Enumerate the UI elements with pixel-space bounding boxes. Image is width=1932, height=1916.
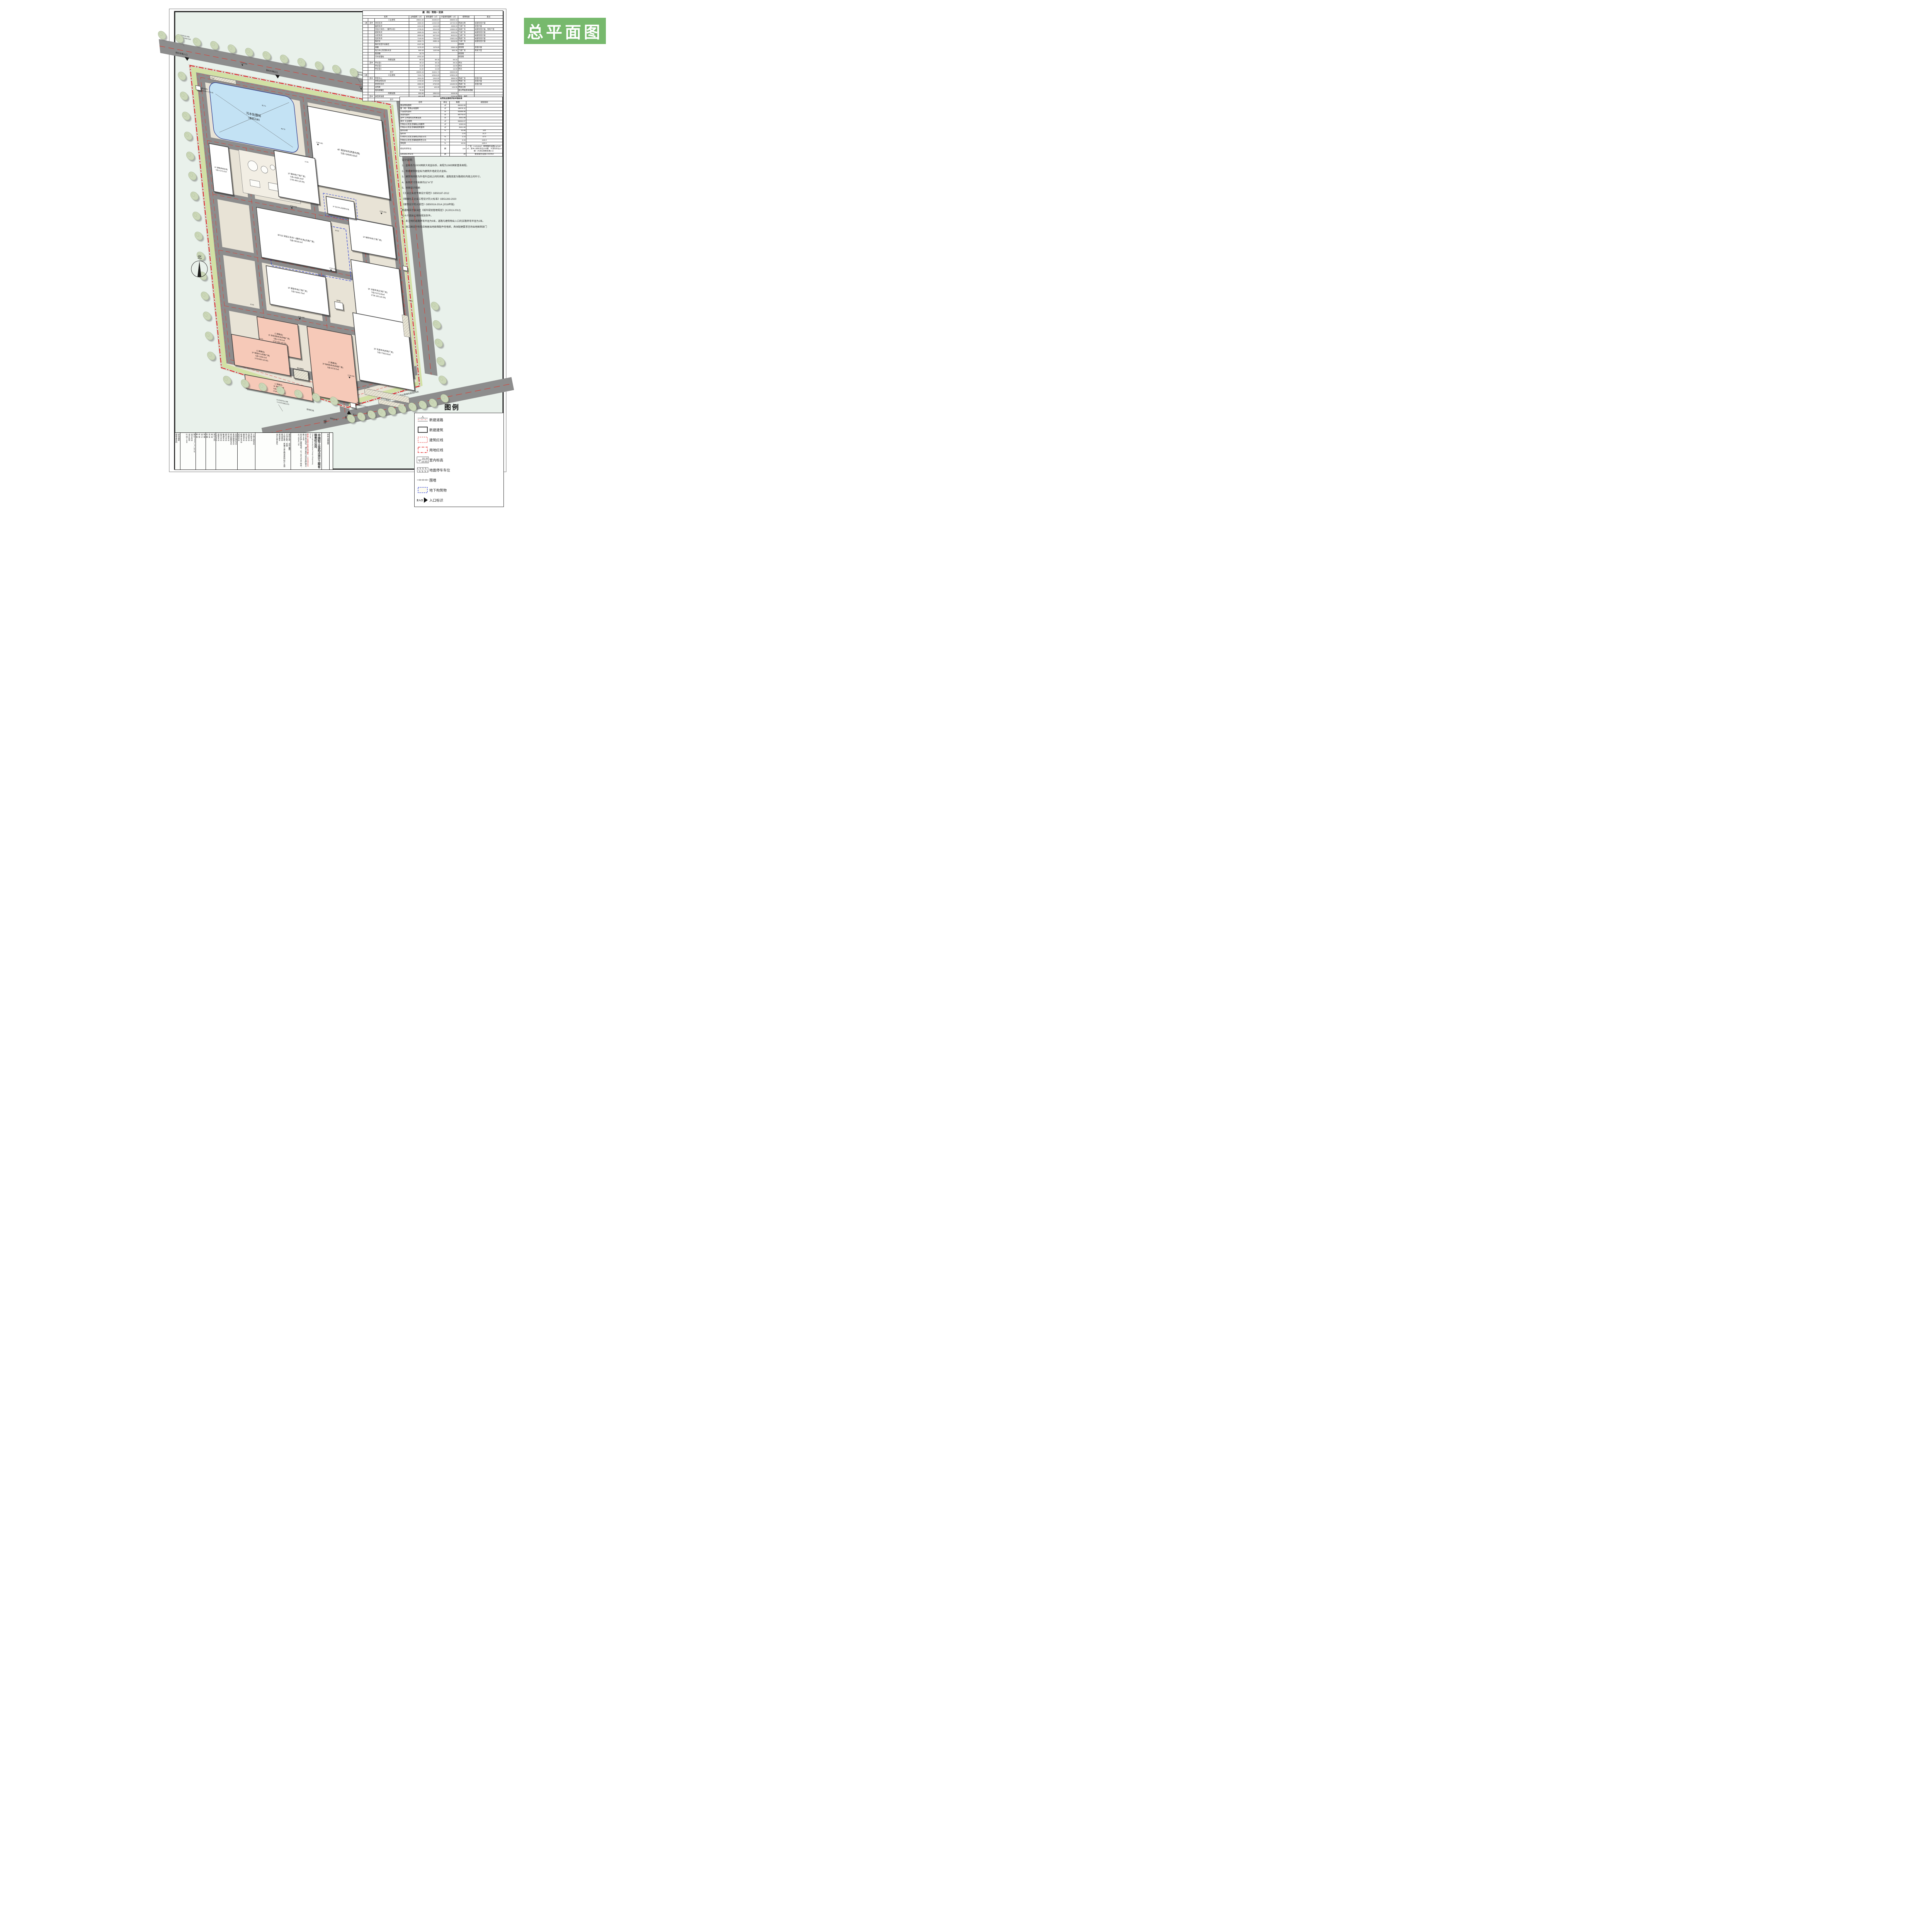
entrance-mark-icon: 主入口 [416,496,429,504]
table-row: 绿地率%12.51≤20.0 [400,142,503,145]
table-row: 其中传达室139.1639.1639.16传达 [363,61,503,65]
table-row: 改性淀粉车间1720.001720.003440.00甲类厂房双倍计容 [363,80,503,83]
table-row: 传达室315.0015.0015.00传达 [363,68,503,71]
title-block-cell: 人防工程专业市政专业自控专业热力专业弱电专业给排水专业结构专业总图专业签 名 [238,433,255,470]
legend-item-new-road: 新建道路 [416,415,459,425]
legend-panel: 图例 新建道路 新建建筑 建筑红线 [414,402,504,507]
title-block-cell: 图纸名称：总平面图子项名称：总图工程名称：新疆三垒生物基新材料产业园建设项目建设… [255,433,291,470]
building: 1F 锅炉房(丁类厂房)S总=2586.16㎡1740.400 (±0.00) [274,150,320,204]
title-block-cell: 特种设备盖章 [322,433,330,470]
table-row: 工业建筑30821.3245335.5768600.42 [363,19,503,22]
title-block: 修改版别图纸条形码图 号 ******—**—## ##设计专业设计阶段比 例 … [175,432,333,470]
table-row: 二期工业建筑7234.7510518.3020902.30 [363,74,503,77]
indicator-table: 总用地主要经济技术指标表名称单位数量规划指标建设用地面积㎡89492.80建（构… [400,97,503,157]
note-line: 新疆维吾尔自治区《城市规划管理规定》(XJJ013-2012) [402,208,503,213]
table-row: 其中 工业建筑㎡55853.87 [400,120,503,123]
title-block-cell: 修改版别图纸条形码 [175,433,180,470]
title-block-cell: 图 号 ******—**—## ##设计专业设计阶段比 例 1:500 [180,433,196,470]
drawing-title: 总平面图 [527,19,603,43]
note-line: 2、新建建筑物坐标为建筑外墙皮交点坐标。 [402,169,503,174]
table-row: 深加工车间一（循环水池）2736.009018.0013680.00戊类厂房局部… [363,28,503,31]
note-line: 3、建筑物间距为外墙外边线之间的间距，道路宽度为路缘石内缘之间尺寸。 [402,174,503,180]
legend-item-wall: 围墙 [416,475,457,485]
table-row: 其中育苗中心1944.001944.003888.00丙类厂房双倍计容 [363,77,503,80]
table-row: 锅炉房室外设备区2137.46构筑物 [363,43,503,46]
title-block-cell: 中国轻工业武汉设计工程有限责任公司China Light Industry Wu… [291,433,322,470]
wall-icon [416,476,429,484]
table-row: 埋地储罐区76.45部分甲类液体储罐 [363,89,503,92]
table-row: 分装车间2805.005273.838043.91乙类厂房局部双倍计容 [363,34,503,37]
new-road-icon [416,416,429,424]
legend-item-surface-parking: 地面停车车位 [416,465,457,475]
tree [158,31,166,40]
title-block-cell: 制 图设 计校 核审 核审 定专业负责人项目负责人 [196,433,206,470]
building-redline-icon [416,436,429,444]
table-row: 建筑系数%43.66≥40 [400,129,503,133]
table-row: 行政办公及生活辅助面积百分比%3.15≤15.0 [400,139,503,142]
table-row: 传达室215.0015.0015.00传达 [363,65,503,68]
note-line: 七十六团出让地块规划条件。 [402,213,503,219]
table-row: 容积率1.04≥1.0 [400,133,503,136]
table-row: 建（构）筑物占地面积㎡39076.11 [400,107,503,111]
building: 4F 清洗车间(丙类仓库)S总=14040.00㎡ [308,106,390,199]
site-plan-svg: 茅 松 线 1:2放坡区域 放坡起点标高比围墙标高低0.4米 [0,0,677,479]
note-line: 7、施工图设计阶段应根据当地政策配件充电桩，具体配建要求咨询当地图审部门 [402,225,503,230]
drawing-title-banner: 总平面图 [524,18,606,44]
table-row: 煤棚1175.201175.202350.40构筑物双倍计容 [363,46,503,49]
table-row: 非机动车停车位辆30配套服务设施1.0/100㎡ [400,153,503,156]
legend-item-underground: 地下构筑物 [416,485,457,495]
table-row: 包装车间7140.007332.6313821.63丙类厂房局部双倍计容 [363,37,503,40]
surface-parking-icon [416,466,429,474]
land-redline-icon [416,446,429,454]
table-row: 总建筑面积㎡58775.67 [400,114,503,117]
note-line: 1、坐标系为2000国家大地坐标系，高程为1985国家基准高程。 [402,163,503,168]
table-row: 动力中心及消防水池560.481120.96560.48丁类厂房有地下室 [363,49,503,52]
notes-title: 设计说明： [402,158,503,163]
note-line: 《建筑设计防火规范》GB50016-2014 (2018年版) [402,202,503,208]
legend-item-land-redline: 用地红线 [416,445,459,455]
note-line: 《精细化工企业工程设计防火标准》GB51283-2020 [402,197,503,202]
table-row: 蓖渣罐40.79构筑物 [363,52,503,55]
legend-item-new-building: 新建建筑 [416,425,459,435]
title-block-cell: 装饰装修专业景观种植专业综合管网专业环保专业燃气专业暖通专业电气专业建筑专业工艺… [216,433,238,470]
north-label: 北 [197,255,202,260]
building-list-table: 建（构）筑物一览表名称占地面积（㎡）建筑面积（㎡）计容建筑面积（㎡）使用性质备注… [362,10,503,101]
legend-title: 图例 [444,402,504,412]
note-line: 《工业企业总平面设计规范》GB50187-2012 [402,191,503,196]
table-row: 行政办公及生活辅助建筑面积㎡2921.80 [400,126,503,129]
note-line: 6、未注明的道路转弯半径为9米，道路与建筑物出入口的支路转弯半径为2米。 [402,219,503,224]
table-row: 机动车停车位辆134厂房：0.2/100㎡；配套服务设施0.8/100㎡；其中小… [400,145,503,153]
table-row: 其中 公共建筑及附属设施㎡2921.80 [400,117,503,120]
table-row: 计容建筑面积㎡92899.96 [400,111,503,114]
table-row: 新材料车间3360.006720.0013440.00丙类厂房双倍计容 [363,83,503,86]
svg-text:(±0.00): (±0.00) [422,461,428,463]
table-row: 附属设施69.1669.1669.16 [363,58,503,61]
underground-structure-icon [416,486,429,494]
table-row: 试剂库134.30134.30134.30甲类仓库 [363,86,503,89]
note-line: 5、总图设计依据: [402,185,503,191]
new-building-icon [416,426,429,434]
legend-item-building-redline: 建筑红线 [416,435,459,445]
table-row: 锅炉房1832.742586.163403.50丁类厂房局部双倍计容 [363,40,503,43]
table-row: 一期其中清洗车间4680.0014040.0018720.00丙类仓库局部双倍计… [363,22,503,25]
design-notes: 设计说明：1、坐标系为2000国家大地坐标系，高程为1985国家基准高程。2、新… [402,158,503,230]
title-block-cell: 岗位人员姓 名签 名日 期 [206,433,216,470]
table-row: 附属设施950.882852.643328.08 [363,92,503,95]
legend-item-entrance-mark: 主入口 入口标识 [416,495,457,505]
floor-elevation-icon: 151.00 (±0.00) [416,456,429,464]
table-row: 提取车间2666.253444.795332.50丁类厂房局部双倍计容 [363,31,503,34]
table-row: 行政办公及生活辅助占地百分比%1.14≤7.0 [400,136,503,139]
table-row: 污水处理站3703.40构筑物 [363,55,503,58]
table-row: 建设用地面积㎡89492.80 [400,104,503,107]
table-row: 破碎车间1344.001344.002688.00丁类厂房双倍计容 [363,25,503,28]
building: (二期建设)2F 新材料车间(丙类厂房)S总=6720.0㎡ [307,326,359,404]
table-row: 行政办公及生活辅助占地面积㎡1020.04 [400,123,503,126]
screenshot-root: { "banner": {"title": "总平面图"}, "compass"… [0,0,677,479]
note-line: 4、本图尺寸及标高均以“m”计 [402,180,503,185]
svg-text:主入口: 主入口 [417,499,423,502]
svg-text:151.00: 151.00 [422,458,428,460]
legend-item-floor-elevation: 151.00 (±0.00) 室内标高 [416,455,459,465]
table-row: 合计30890.4845404.7368669.58 [363,71,503,74]
